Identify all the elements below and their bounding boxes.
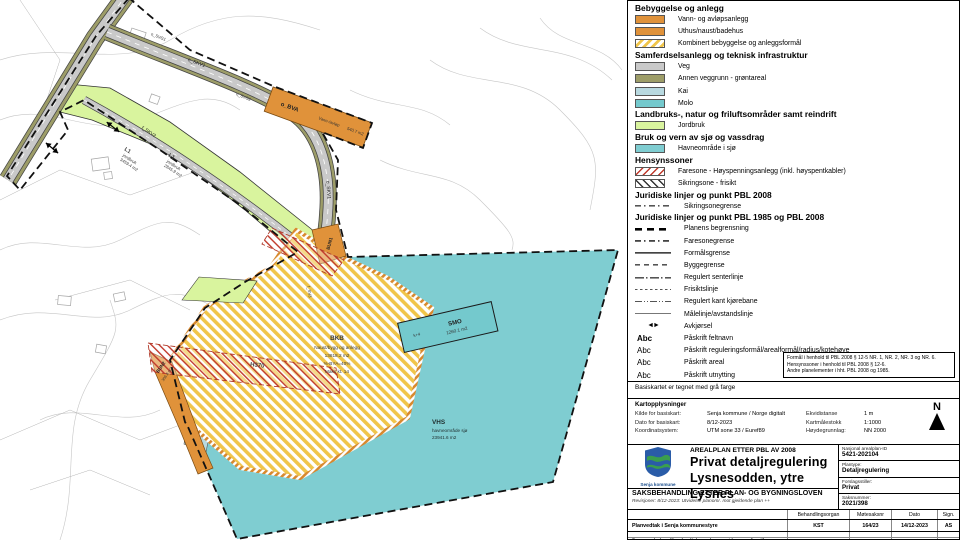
legend-section-heading: Samferdselsanlegg og teknisk infrastrukt… [635, 50, 955, 61]
olive-swatch [635, 74, 665, 83]
teal-swatch [635, 99, 665, 108]
legend-item: Vann- og avløpsanlegg [635, 14, 955, 26]
legend-item: Regulert kant kjørebane [635, 296, 955, 308]
processing-saksnr [849, 532, 891, 537]
line-longdashdot-swatch [635, 274, 671, 282]
svg-text:13818.2 m2: 13818.2 m2 [325, 353, 350, 358]
line-dashdot-swatch [635, 202, 671, 210]
legend-item-label: Frisiktslinje [684, 286, 718, 293]
gray-swatch [635, 62, 665, 71]
map-info-box: Kartopplysninger Kilde for basiskart:Sen… [628, 398, 959, 444]
hatch-red-swatch [635, 167, 665, 176]
legend-item-label: Annen veggrunn - grøntareal [678, 75, 766, 82]
legend-item-label: Vann- og avløpsanlegg [678, 16, 748, 23]
map-info-field-label: Kilde for basiskart: [635, 410, 707, 419]
map-info-field-value: 1:1000 [864, 419, 881, 428]
orange-swatch [635, 15, 665, 24]
line-solid-swatch [635, 249, 671, 257]
map-info-field-value: UTM sone 33 / Euref89 [707, 427, 765, 436]
plan-type-header: AREALPLAN ETTER PBL AV 2008 [690, 447, 838, 454]
legend-item: Frisiktslinje [635, 284, 955, 296]
municipality-name: Senja kommune [628, 482, 688, 487]
municipality-logo: Senja kommune [628, 445, 688, 488]
legend-item-label: Faresonegrense [684, 238, 734, 245]
revision-line: Revisjoner: 8/12-2023: Utvidelse planomr… [632, 499, 834, 504]
legend-item-label: Påskrift feltnavn [684, 335, 733, 342]
legend-item-label: Målelinje/avstandslinje [684, 311, 753, 318]
processing-header: SAKSBEHANDLING ETTER PLAN- OG BYGNINGSLO… [632, 490, 834, 497]
map-info-field-label: Ekvidistanse [806, 410, 864, 419]
legend-section-heading: Landbruks-, natur og friluftsområder sam… [635, 109, 955, 120]
legend-item-label: Regulert kant kjørebane [684, 298, 758, 305]
legend-item-label: Sikringsone - frisikt [678, 180, 736, 187]
processing-saksnr: 164/23 [849, 520, 891, 531]
legend-item-label: Avkjørsel [684, 323, 712, 330]
legend-item: Kai [635, 85, 955, 97]
plan-meta: Nasjonal arealplan-ID5421-202104Plantype… [838, 445, 959, 509]
plan-meta-value: 5421-202104 [842, 451, 956, 458]
processing-col-header: Dato [891, 510, 937, 519]
line-dashdot2-swatch [635, 237, 671, 245]
legend-item-label: Havneområde i sjø [678, 145, 736, 152]
processing-dato [891, 532, 937, 537]
svg-text:Naust/bygg og anlegg: Naust/bygg og anlegg [314, 345, 360, 350]
legend-section-heading: Bebyggelse og anlegg [635, 3, 955, 14]
legend-item-label: Faresone - Høyspenningsanlegg (inkl. høy… [678, 168, 846, 175]
legend-item: Jordbruk [635, 120, 955, 132]
line-dashdotdot-swatch [635, 298, 671, 306]
processing-dato: 16/11-2023 [891, 538, 937, 539]
legend-item: Sikringsone - frisikt [635, 177, 955, 189]
map-info-field: Koordinatsystem:UTM sone 33 / Euref89 [635, 427, 800, 436]
processing-dato: 14/12-2023 [891, 520, 937, 531]
teal2-swatch [635, 144, 665, 153]
svg-text:23941.6 m2: 23941.6 m2 [432, 435, 457, 440]
legend-item: Faresonegrense [635, 235, 955, 247]
line-dash-swatch [635, 261, 671, 269]
map-info-left: Kilde for basiskart:Senja kommune / Norg… [635, 410, 800, 436]
legend-item-label: Uthus/naust/badehus [678, 28, 743, 35]
legend-item-label: Kombinert bebyggelse og anleggsformål [678, 40, 801, 47]
plan-meta-cell: Plantype:Detaljregulering [839, 461, 959, 477]
map-info-field-label: Høydegrunnlag: [806, 427, 864, 436]
processing-sign [937, 532, 959, 537]
legend-item: Byggegrense [635, 259, 955, 271]
l1a-label: L1 jordbruk 3459.4 m2 [117, 147, 145, 173]
processing-saksnr: 136/2023 [849, 538, 891, 539]
legend-item: Havneområde i sjø [635, 143, 955, 155]
processing-desc: 6. gangs behandling (vedtak av plan og v… [628, 538, 787, 539]
abc-text-sample: Abc [635, 334, 671, 343]
map-info-field-label: Koordinatsystem: [635, 427, 707, 436]
pbl-note-box: Formål i henhold til PBL 2008 § 12-5 NR.… [783, 352, 955, 378]
legend-item-label: Planens begrensning [684, 225, 749, 232]
green-swatch [635, 121, 665, 130]
legend-item-label: Kai [678, 88, 688, 95]
legend-item: Sikringsonegrense [635, 200, 955, 212]
legend-item: AbcPåskrift feltnavn [635, 332, 955, 344]
map-info-field-value: 1 m [864, 410, 873, 419]
map-info-right: Ekvidistanse1 mKartmålestokk1:1000Høydeg… [806, 410, 916, 436]
processing-desc [628, 532, 787, 537]
road-label-svg1: o_SVG1 [150, 31, 167, 42]
title-block: Senja kommune AREALPLAN ETTER PBL AV 200… [628, 444, 959, 509]
legend-item-label: Formålsgrense [684, 250, 730, 257]
processing-sign: AS [937, 538, 959, 539]
legend-item: Planens begrensning [635, 223, 955, 235]
processing-sign: AS [937, 520, 959, 531]
legend-item-label: Jordbruk [678, 122, 705, 129]
processing-table: BehandlingsorganMøtesaksnrDatoSign.Planv… [628, 509, 959, 539]
hatch-black-swatch [635, 179, 665, 188]
avkjoersel-arrow-icon [44, 141, 60, 156]
legend-item: Annen veggrunn - grøntareal [635, 73, 955, 85]
basemap-note: Basiskartet er tegnet med grå farge [628, 381, 959, 398]
legend-item: Målelinje/avstandslinje [635, 308, 955, 320]
pbl-note-line: Andre planelementer i hht. PBL 2008 og 1… [787, 368, 951, 375]
legend-item: Faresone - Høyspenningsanlegg (inkl. høy… [635, 165, 955, 177]
processing-table-row: Planvedtak i Senja kommunestyreKST164/23… [628, 520, 959, 532]
processing-organ: UFS [787, 538, 849, 539]
plan-map: o_BVA Vann-/avløp 540.7 m2 SMO 1260.1 m2… [0, 0, 630, 540]
legend-section-heading: Hensynssoner [635, 155, 955, 166]
processing-col-header: Sign. [937, 510, 959, 519]
legend-item-label: Påskrift areal [684, 359, 724, 366]
map-info-field-value: 8/12-2023 [707, 419, 732, 428]
map-info-field: Høydegrunnlag:NN 2000 [806, 427, 916, 436]
legend-item: Veg [635, 61, 955, 73]
plan-meta-cell: Forslagsstiller:Privat [839, 478, 959, 494]
plan-meta-cell: Nasjonal arealplan-ID5421-202104 [839, 445, 959, 461]
legend-item: Molo [635, 97, 955, 109]
plan-meta-value: Privat [842, 484, 956, 491]
abc-text-sample: Abc [635, 371, 671, 380]
plan-meta-cell: Saksnummer:2021/398 [839, 494, 959, 509]
map-info-heading: Kartopplysninger [635, 401, 952, 408]
abc-text-sample: Abc [635, 346, 671, 355]
processing-col-header [628, 510, 787, 519]
plan-meta-value: Detaljregulering [842, 467, 956, 474]
legend-item-label: Byggegrense [684, 262, 725, 269]
map-info-field: Dato for basiskart:8/12-2023 [635, 419, 800, 428]
map-info-field-value: NN 2000 [864, 427, 886, 436]
pbl-note-line: Formål i henhold til PBL 2008 § 12-5 NR.… [787, 355, 951, 362]
north-arrow-icon: N [929, 402, 945, 430]
processing-organ: KST [787, 520, 849, 531]
legend-item-label: Molo [678, 100, 693, 107]
legend-section-heading: Juridiske linjer og punkt PBL 1985 og PB… [635, 212, 955, 223]
map-info-field-label: Kartmålestokk [806, 419, 864, 428]
legend-item: Uthus/naust/badehus [635, 26, 955, 38]
legend-item: Regulert senterlinje [635, 272, 955, 284]
line-thin-swatch [635, 310, 671, 318]
map-info-field: Ekvidistanse1 m [806, 410, 916, 419]
map-info-field-value: Senja kommune / Norge digitalt [707, 410, 785, 419]
map-info-field-label: Dato for basiskart: [635, 419, 707, 428]
processing-table-row: 6. gangs behandling (vedtak av plan og v… [628, 538, 959, 539]
legend-item-label: Sikringsonegrense [684, 203, 741, 210]
legend-item: Kombinert bebyggelse og anleggsformål [635, 38, 955, 50]
processing-desc: Planvedtak i Senja kommunestyre [628, 520, 787, 531]
map-info-field: Kartmålestokk1:1000 [806, 419, 916, 428]
svg-text:%-BYA=40%: %-BYA=40% [324, 361, 351, 366]
svg-text:havneområde sjø: havneområde sjø [432, 427, 468, 433]
hatch-yellow-swatch [635, 39, 665, 48]
avkjoersel-arrow-icon: ◄► [635, 322, 671, 330]
lightblue-swatch [635, 87, 665, 96]
legend: Bebyggelse og anleggVann- og avløpsanleg… [628, 1, 959, 381]
legend-item-label: Veg [678, 63, 690, 70]
legend-panel: Bebyggelse og anleggVann- og avløpsanleg… [627, 0, 960, 540]
svg-text:BKB: BKB [330, 335, 344, 342]
abc-text-sample: Abc [635, 358, 671, 367]
legend-item-label: Regulert senterlinje [684, 274, 743, 281]
processing-col-header: Behandlingsorgan [787, 510, 849, 519]
processing-col-header: Møtesaksnr [849, 510, 891, 519]
basemap-property-lines [0, 0, 200, 495]
legend-section-heading: Bruk og vern av sjø og vassdrag [635, 132, 955, 143]
legend-item: Formålsgrense [635, 247, 955, 259]
plan-title-line1: Privat detaljregulering [690, 454, 838, 470]
processing-organ [787, 532, 849, 537]
plan-meta-value: 2021/398 [842, 500, 956, 507]
line-dots-swatch [635, 286, 671, 294]
orange-swatch [635, 27, 665, 36]
line-heavydash-swatch [635, 225, 671, 233]
processing-table-header: BehandlingsorganMøtesaksnrDatoSign. [628, 510, 959, 520]
legend-item: ◄►Avkjørsel [635, 320, 955, 332]
svg-text:VHS: VHS [432, 419, 446, 426]
svg-text:Maks kt. 14: Maks kt. 14 [325, 369, 349, 374]
map-info-field: Kilde for basiskart:Senja kommune / Norg… [635, 410, 800, 419]
legend-item-label: Påskrift utnytting [684, 372, 735, 379]
legend-section-heading: Juridiske linjer og punkt PBL 2008 [635, 190, 955, 201]
